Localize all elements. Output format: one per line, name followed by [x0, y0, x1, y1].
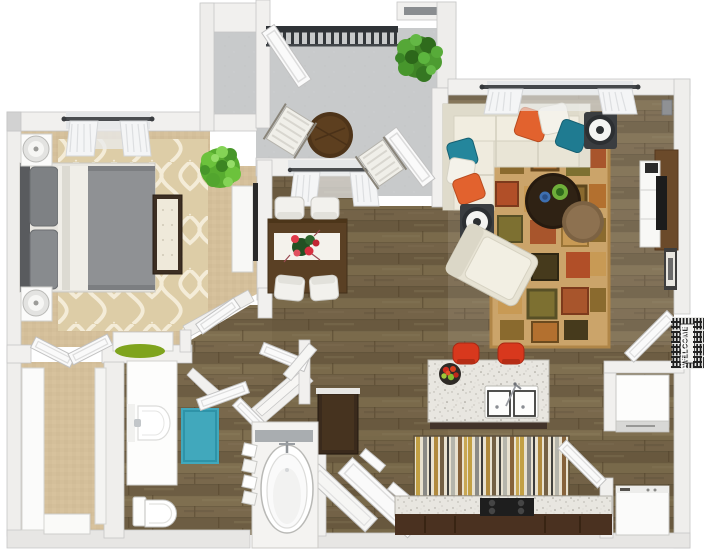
svg-text:WELCOME: WELCOME: [680, 324, 689, 370]
